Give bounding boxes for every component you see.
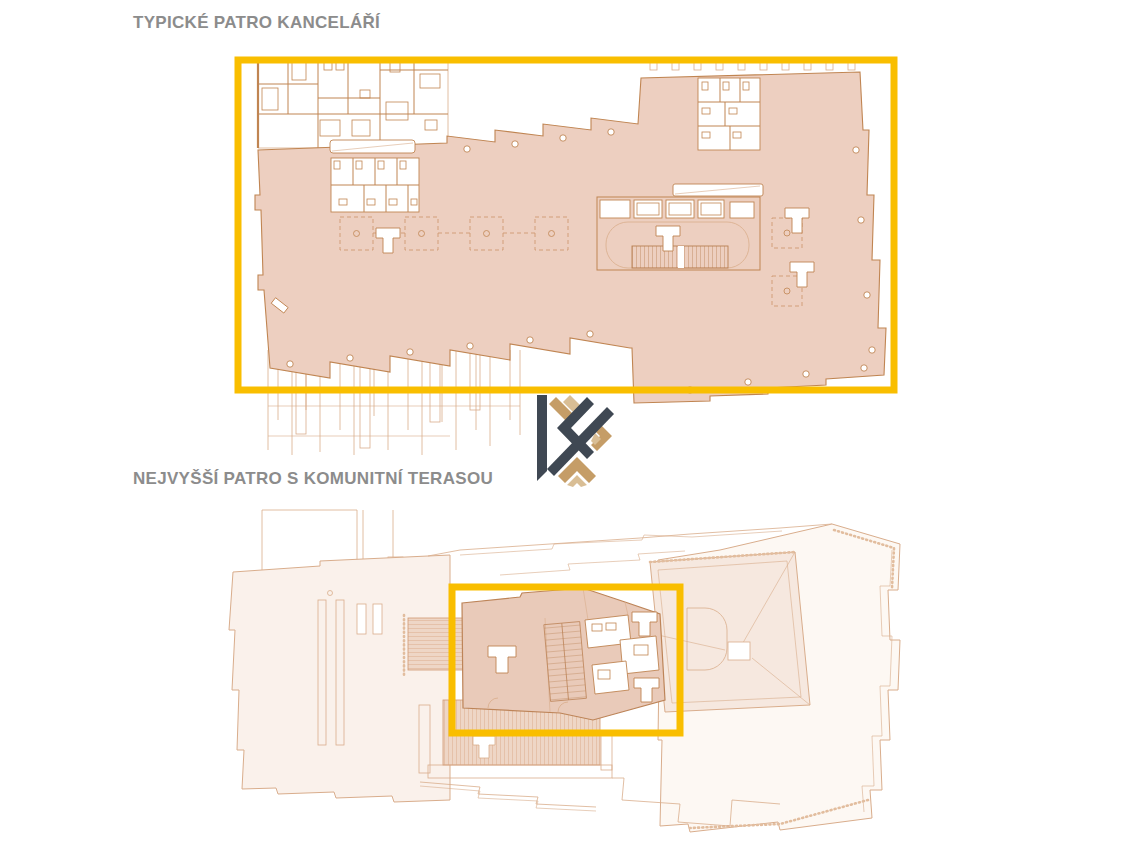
penthouse-unit [462,588,665,720]
floor-plan-top-floor [220,500,910,862]
page: TYPICKÉ PATRO KANCELÁŘÍ [0,0,1130,862]
right-terrace [650,552,810,712]
brand-logo-k [525,393,615,487]
terrace-skylight [728,642,750,660]
adjacent-apartments [258,58,448,153]
section-title-top-floor: NEJVYŠŠÍ PATRO S KOMUNITNÍ TERASOU [133,469,493,489]
sanitary-block-left [331,158,419,212]
skylight-strip-left [330,140,415,153]
sanitary-block-right [698,78,760,150]
left-terrace [229,555,450,802]
section-title-typical-floor: TYPICKÉ PATRO KANCELÁŘÍ [133,13,380,33]
